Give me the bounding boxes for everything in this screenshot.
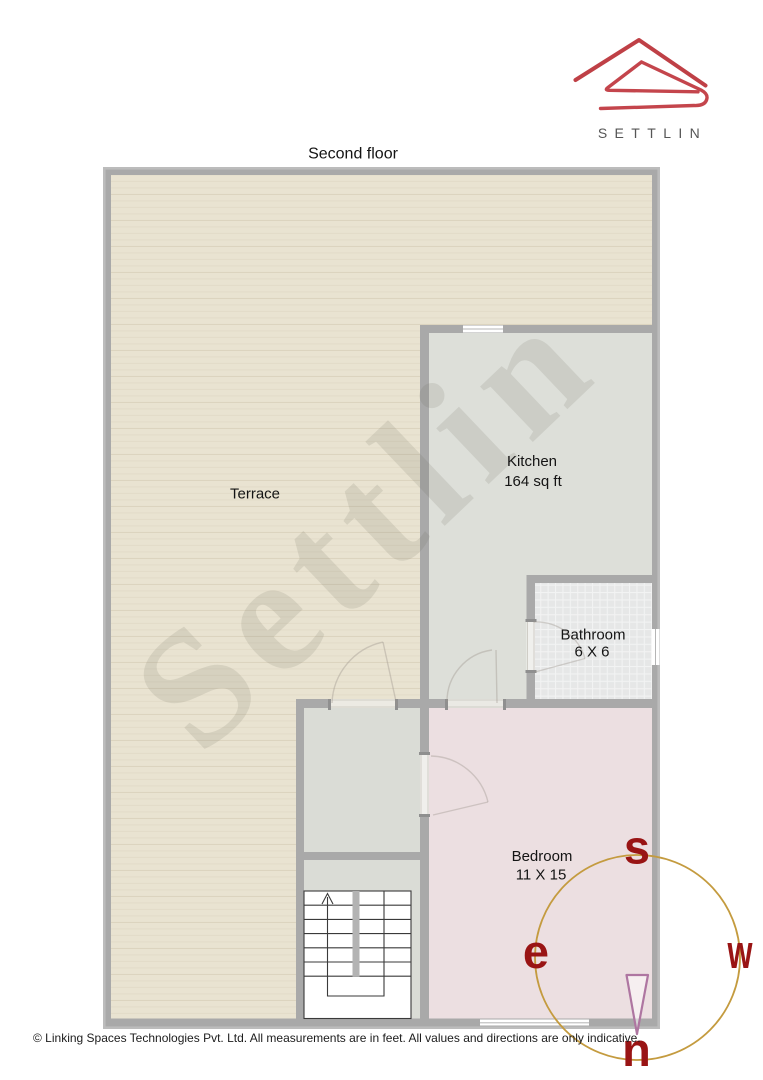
svg-text:6 X 6: 6 X 6	[574, 644, 609, 661]
svg-text:Second floor: Second floor	[308, 146, 399, 163]
svg-text:SETTLIN: SETTLIN	[598, 125, 707, 141]
svg-text:Kitchen: Kitchen	[507, 453, 557, 470]
svg-text:s: s	[624, 821, 650, 874]
svg-text:© Linking Spaces Technologies: © Linking Spaces Technologies Pvt. Ltd. …	[33, 1031, 641, 1045]
svg-text:11 X 15: 11 X 15	[516, 867, 567, 884]
svg-text:164 sq ft: 164 sq ft	[504, 473, 562, 490]
svg-text:Bedroom: Bedroom	[512, 848, 573, 865]
svg-text:w: w	[727, 925, 753, 978]
svg-text:e: e	[523, 925, 549, 978]
svg-text:Terrace: Terrace	[230, 486, 280, 503]
svg-text:Bathroom: Bathroom	[560, 627, 625, 644]
